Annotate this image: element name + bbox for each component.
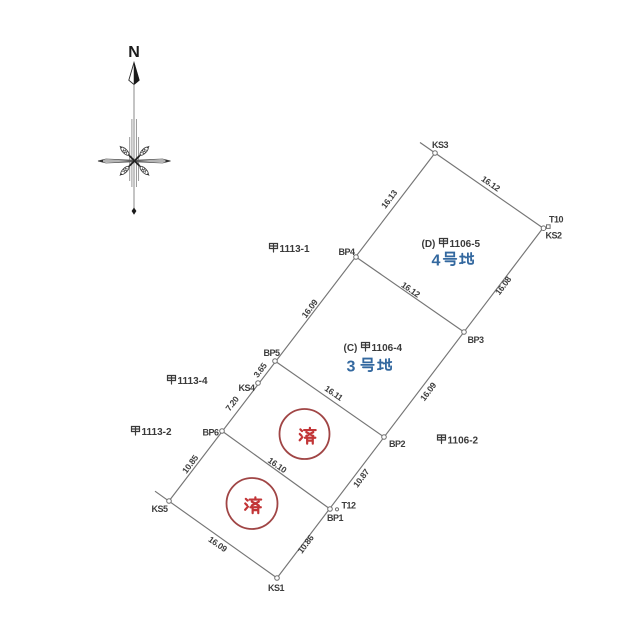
svg-text:KS1: KS1 — [268, 583, 285, 593]
svg-text:1106-2: 1106-2 — [448, 436, 479, 447]
svg-text:BP4: BP4 — [339, 247, 356, 257]
svg-text:3: 3 — [347, 359, 356, 376]
svg-text:KS3: KS3 — [432, 140, 449, 150]
svg-text:1106-5: 1106-5 — [450, 239, 481, 250]
svg-text:BP1: BP1 — [327, 513, 344, 523]
svg-text:4: 4 — [432, 253, 441, 270]
svg-text:T12: T12 — [342, 501, 357, 511]
svg-text:1113-4: 1113-4 — [178, 376, 208, 387]
svg-text:BP5: BP5 — [264, 348, 281, 358]
svg-text:1113-2: 1113-2 — [142, 427, 172, 438]
svg-text:T10: T10 — [549, 215, 564, 225]
svg-text:(C): (C) — [344, 343, 358, 354]
svg-text:1113-1: 1113-1 — [280, 244, 310, 255]
svg-text:N: N — [128, 44, 140, 61]
svg-text:KS2: KS2 — [546, 231, 563, 241]
svg-text:BP3: BP3 — [468, 335, 485, 345]
svg-text:BP2: BP2 — [389, 439, 406, 449]
svg-text:(D): (D) — [422, 239, 436, 250]
svg-text:KS5: KS5 — [152, 504, 169, 514]
svg-text:BP6: BP6 — [203, 428, 220, 438]
svg-text:KS4: KS4 — [239, 383, 256, 393]
svg-text:1106-4: 1106-4 — [372, 343, 403, 354]
